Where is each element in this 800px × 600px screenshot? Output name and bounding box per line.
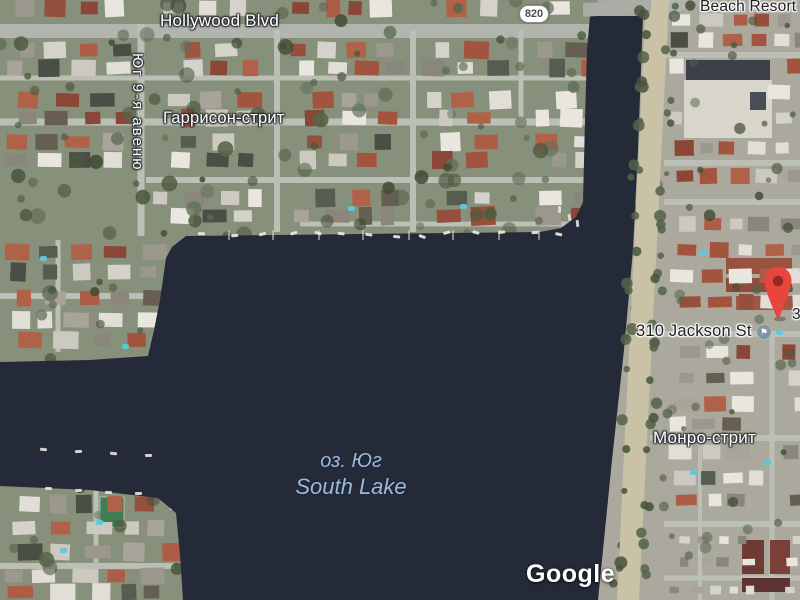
flag-glyph: ⚑ — [760, 328, 768, 337]
satellite-canvas[interactable] — [0, 0, 800, 600]
route-shield-820: 820 — [519, 5, 549, 23]
hollywood-blvd-road — [0, 24, 600, 38]
map-viewport[interactable]: Hollywood Blvd 820 Beach Resort Юг 9-я а… — [0, 0, 800, 600]
location-pin-icon[interactable] — [763, 266, 793, 322]
poi-flag-icon[interactable]: ⚑ — [757, 325, 771, 339]
